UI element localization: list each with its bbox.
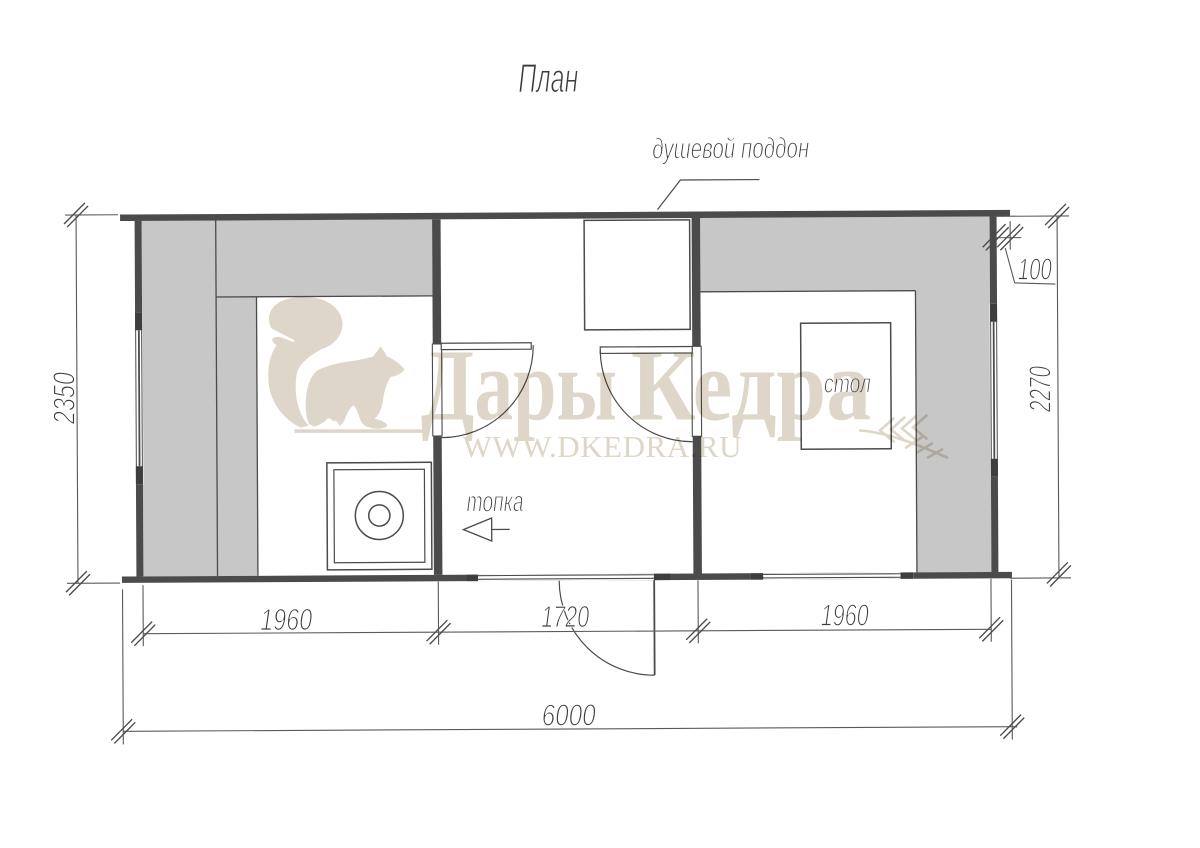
svg-text:Кедра: Кедра — [631, 330, 871, 443]
svg-text:1960: 1960 — [260, 603, 312, 637]
svg-text:6000: 6000 — [542, 698, 596, 732]
svg-text:1720: 1720 — [541, 600, 589, 634]
svg-text:2350: 2350 — [47, 372, 81, 425]
svg-text:Дары: Дары — [421, 330, 617, 443]
svg-text:душевой поддон: душевой поддон — [652, 133, 809, 166]
svg-text:2270: 2270 — [1023, 366, 1057, 413]
svg-text:100: 100 — [1018, 252, 1052, 286]
svg-text:WWW.DKEDRA.RU: WWW.DKEDRA.RU — [463, 429, 742, 464]
svg-text:топка: топка — [466, 486, 523, 518]
svg-text:1960: 1960 — [821, 598, 869, 632]
svg-text:План: План — [518, 55, 578, 101]
